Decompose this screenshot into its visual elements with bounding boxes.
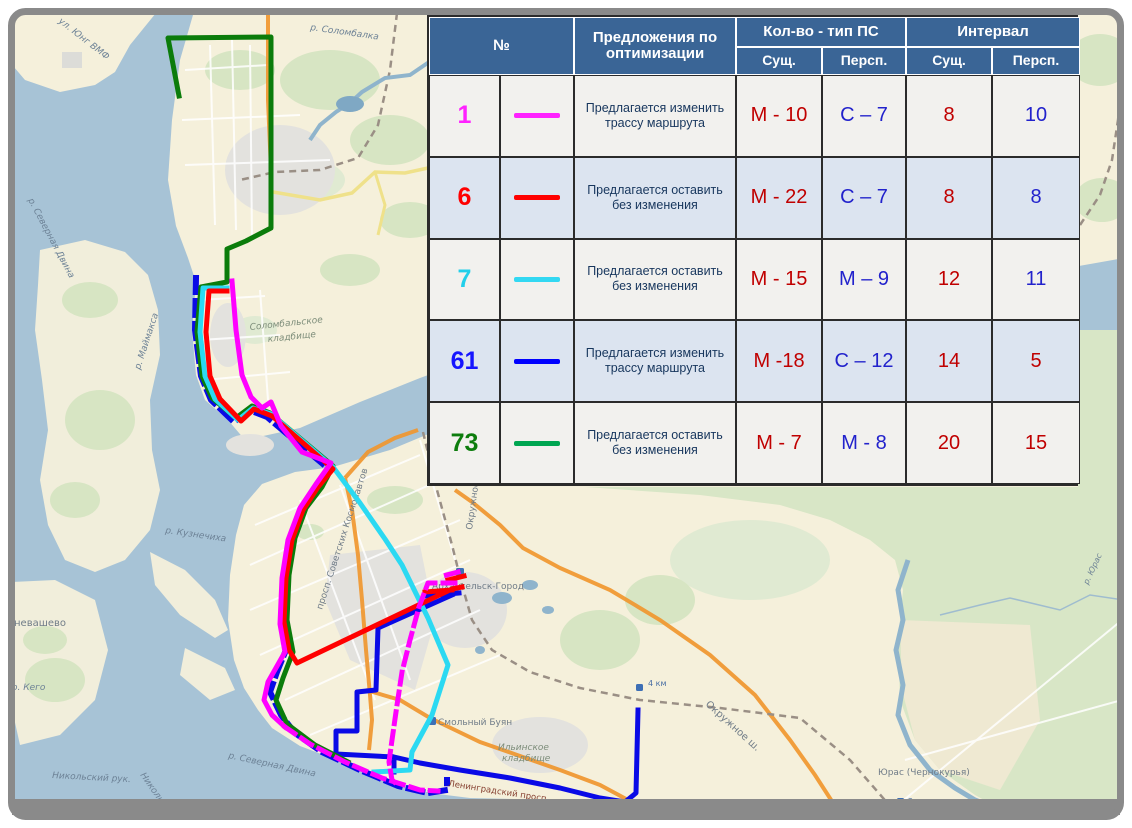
route-number: 1	[429, 75, 500, 157]
subheader-int-persp: Персп.	[992, 47, 1080, 75]
interval-persp-value: 5	[992, 320, 1080, 402]
interval-persp-value: 11	[992, 239, 1080, 321]
route-optimization-table: № Предложения по оптимизации Кол-во - ти…	[427, 15, 1078, 486]
ps-persp-value: С – 12	[822, 320, 906, 402]
route-6-swatch	[514, 195, 560, 200]
frame-bottom-band	[12, 799, 1120, 815]
ps-exist-value: М - 10	[736, 75, 822, 157]
header-vehicle-count-type: Кол-во - тип ПС	[736, 17, 906, 47]
interval-persp-value: 8	[992, 157, 1080, 239]
route-color-swatch	[500, 239, 574, 321]
route-color-swatch	[500, 157, 574, 239]
route-number: 73	[429, 402, 500, 484]
subheader-int-exist: Сущ.	[906, 47, 992, 75]
interval-persp-value: 15	[992, 402, 1080, 484]
header-interval: Интервал	[906, 17, 1080, 47]
slide: ул. Юнг ВМФ р. Северная Двина р. Северна…	[0, 0, 1132, 828]
interval-exist-value: 12	[906, 239, 992, 321]
ps-persp-value: М - 8	[822, 402, 906, 484]
subheader-ps-persp: Персп.	[822, 47, 906, 75]
ps-exist-value: М - 22	[736, 157, 822, 239]
ps-exist-value: М - 15	[736, 239, 822, 321]
ps-persp-value: С – 7	[822, 157, 906, 239]
interval-persp-value: 10	[992, 75, 1080, 157]
header-proposal: Предложения по оптимизации	[574, 17, 736, 75]
route-number: 6	[429, 157, 500, 239]
interval-exist-value: 8	[906, 157, 992, 239]
subheader-ps-exist: Сущ.	[736, 47, 822, 75]
route-number: 7	[429, 239, 500, 321]
ps-exist-value: М - 7	[736, 402, 822, 484]
route-color-swatch	[500, 75, 574, 157]
route-color-swatch	[500, 320, 574, 402]
proposal-text: Предлагается оставить без изменения	[574, 239, 736, 321]
route-1-swatch	[514, 113, 560, 118]
label-ilinskoe-1: Ильинское	[498, 743, 549, 753]
interval-exist-value: 8	[906, 75, 992, 157]
label-ilinskoe-2: кладбище	[502, 754, 551, 764]
ps-persp-value: С – 7	[822, 75, 906, 157]
km4-icon	[636, 684, 643, 691]
label-yuras-village: Юрас (Чернокурья)	[878, 768, 970, 778]
proposal-text: Предлагается изменить трассу маршрута	[574, 75, 736, 157]
label-4km: 4 км	[648, 679, 667, 688]
proposal-text: Предлагается оставить без изменения	[574, 402, 736, 484]
route-7-swatch	[514, 277, 560, 282]
route-color-swatch	[500, 402, 574, 484]
proposal-text: Предлагается изменить трассу маршрута	[574, 320, 736, 402]
label-kego: о. Кего	[12, 683, 46, 693]
route-73-swatch	[514, 441, 560, 446]
label-smolny-buyan: Смольный Буян	[438, 718, 512, 728]
ps-persp-value: М – 9	[822, 239, 906, 321]
ps-exist-value: М -18	[736, 320, 822, 402]
proposal-text: Предлагается оставить без изменения	[574, 157, 736, 239]
route-61-swatch	[514, 359, 560, 364]
route-number: 61	[429, 320, 500, 402]
label-nevashevo: невашево	[14, 618, 66, 629]
header-route-number: №	[429, 17, 574, 75]
interval-exist-value: 14	[906, 320, 992, 402]
interval-exist-value: 20	[906, 402, 992, 484]
